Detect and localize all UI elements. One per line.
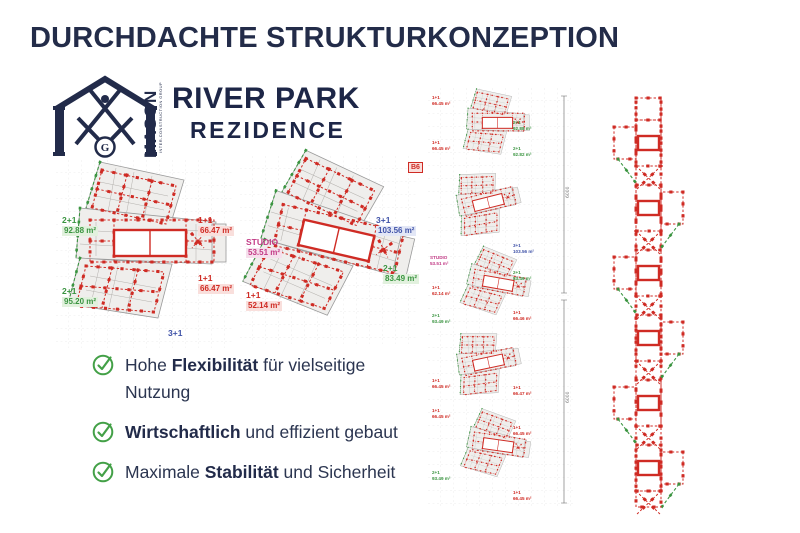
slide: DURCHDACHTE STRUKTURKONZEPTION G MASON I… [0,0,800,533]
area-value: 95.20 m² [62,297,98,307]
strip-unit-label: 1+1 66.45 m² [432,95,450,106]
check-circle-icon [92,421,114,443]
unit-label: 3+1 [168,328,182,338]
strip-unit-label: 1+1 66.47 m² [513,385,531,396]
strip-unit-label: 1+1 66.45 m² [432,140,450,151]
benefit-item: Maximale Stabilität und Sicherheit [92,459,422,486]
unit-label: STUDIO 53.51 m² [246,237,282,258]
benefit-text: Hohe Flexibilität für vielseitige Nutzun… [125,352,413,406]
area-value: 92.88 m² [62,226,98,236]
check-circle-icon [92,461,114,483]
strip-unit-label: 3+1 103.56 m² [513,243,534,254]
strip-unit-label: 1+1 66.45 m² [513,490,531,501]
benefit-item: Hohe Flexibilität für vielseitige Nutzun… [92,352,422,406]
strip-unit-label: 1+1 66.45 m² [432,378,450,389]
benefits-list: Hohe Flexibilität für vielseitige Nutzun… [92,352,422,500]
brand-tagline: INTER-CONSTRUCTION GROUP [158,81,163,153]
strip-unit-label: 2+1 92.88 m² [513,120,531,131]
site-strip: 6000 6000 1+1 66.45 m² 1+1 66.45 m² STUD… [428,88,574,508]
strip-unit-label: 1+1 66.46 m² [513,310,531,321]
unit-label: 2+1 92.88 m² [62,215,98,236]
area-value: 66.47 m² [198,284,234,294]
project-name: RIVER PARK [172,82,360,116]
page-title: DURCHDACHTE STRUKTURKONZEPTION [30,22,619,55]
strip-unit-label: 2+1 93.49 m² [432,313,450,324]
area-value: 66.47 m² [198,226,234,236]
benefit-item: Wirtschaftlich und effizient gebaut [92,419,422,446]
strip-unit-label: 1+1 66.45 m² [513,425,531,436]
area-value: 83.49 m² [383,274,419,284]
area-value: 52.14 m² [246,301,282,311]
strip-unit-label: 2+1 92.82 m² [513,146,531,157]
unit-label: 1+1 66.47 m² [198,215,234,236]
strip-unit-label: 1+1 66.45 m² [432,408,450,419]
strip-unit-label: STUDIO 53.51 m² [430,255,448,266]
project-subname: REZIDENCE [190,117,345,144]
area-value: 103.56 m² [376,226,416,236]
building-badge: B6 [408,162,423,173]
benefit-text: Maximale Stabilität und Sicherheit [125,459,413,486]
check-circle-icon [92,354,114,376]
unit-label: 1+1 52.14 m² [246,290,282,311]
strip-unit-label: 2+1 83.49 m² [513,270,531,281]
floor-plan-left [56,160,234,348]
unit-label: 3+1 103.56 m² [376,215,416,236]
structural-schematic [598,88,702,508]
unit-label: 2+1 83.49 m² [383,263,419,284]
emblem-letter: G [101,142,110,154]
dimension-label: 6000 [565,391,571,403]
strip-unit-label: 1+1 62.14 m² [432,285,450,296]
unit-label: 2+1 95.20 m² [62,286,98,307]
area-value: 53.51 m² [246,248,282,258]
strip-unit-label: 2+1 93.49 m² [432,470,450,481]
benefit-text: Wirtschaftlich und effizient gebaut [125,419,413,446]
unit-label: 1+1 66.47 m² [198,273,234,294]
dimension-label: 6000 [565,186,571,198]
